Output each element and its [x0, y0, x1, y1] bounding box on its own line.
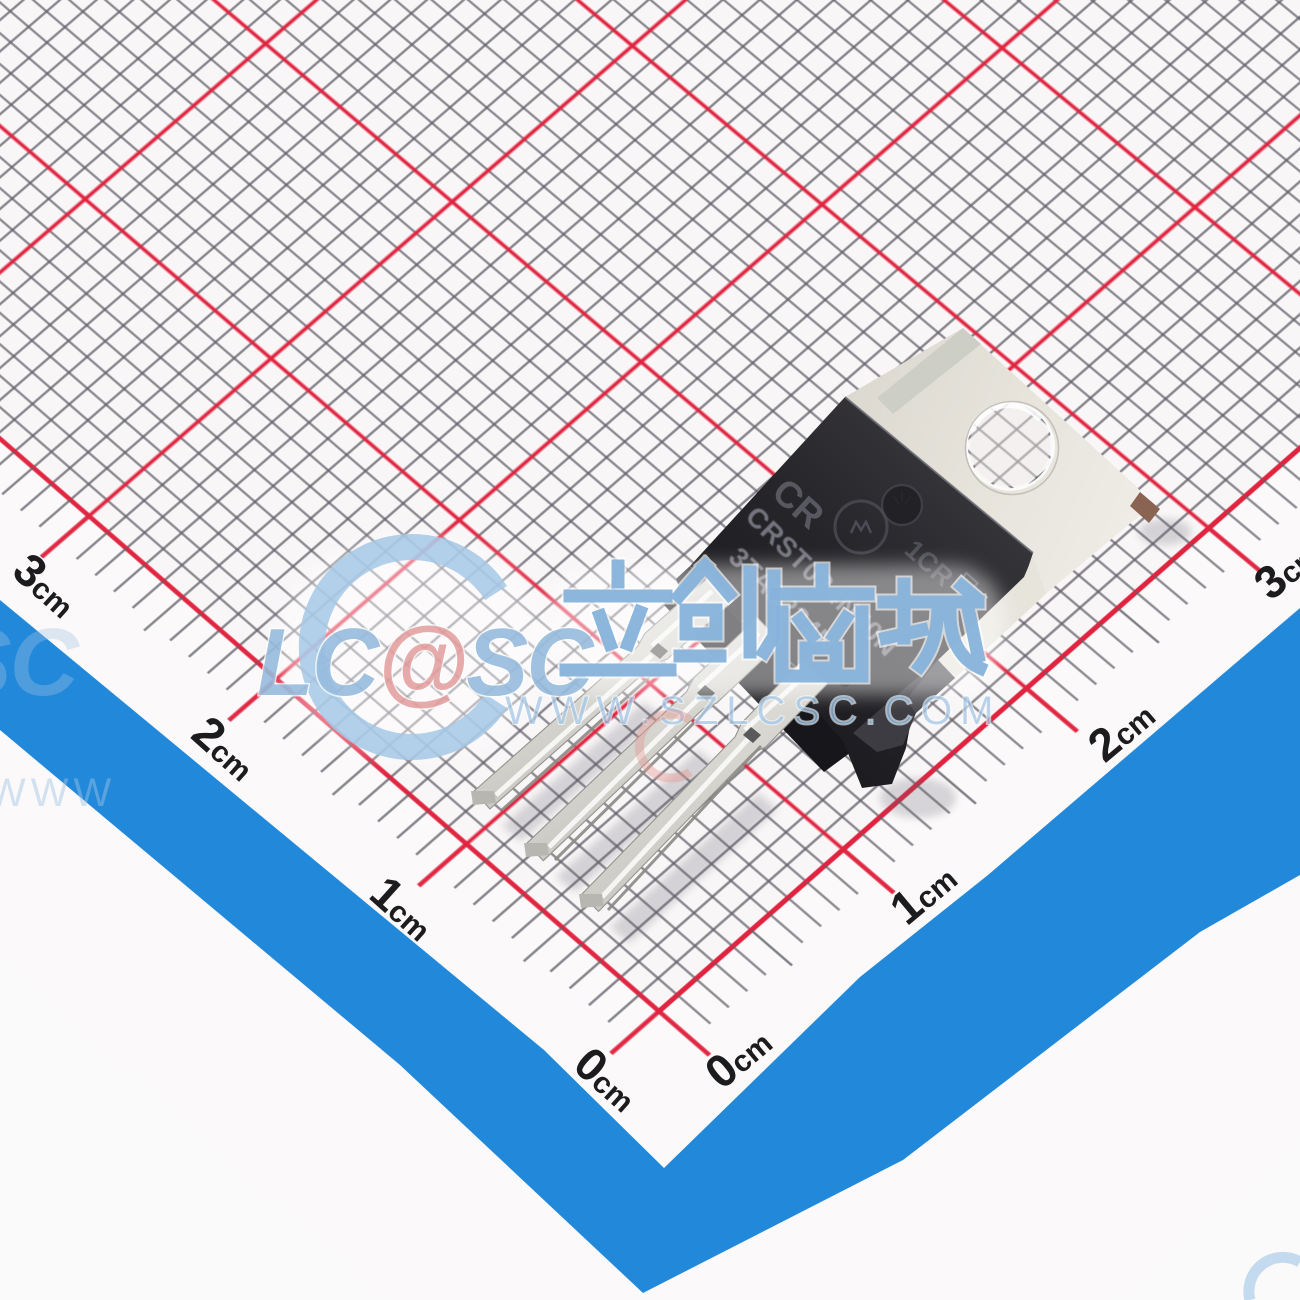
svg-text:WWW: WWW — [0, 771, 116, 815]
svg-text:WWW.SZLCSC.COM: WWW.SZLCSC.COM — [505, 689, 1001, 733]
svg-text:LC@SC: LC@SC — [0, 609, 81, 716]
